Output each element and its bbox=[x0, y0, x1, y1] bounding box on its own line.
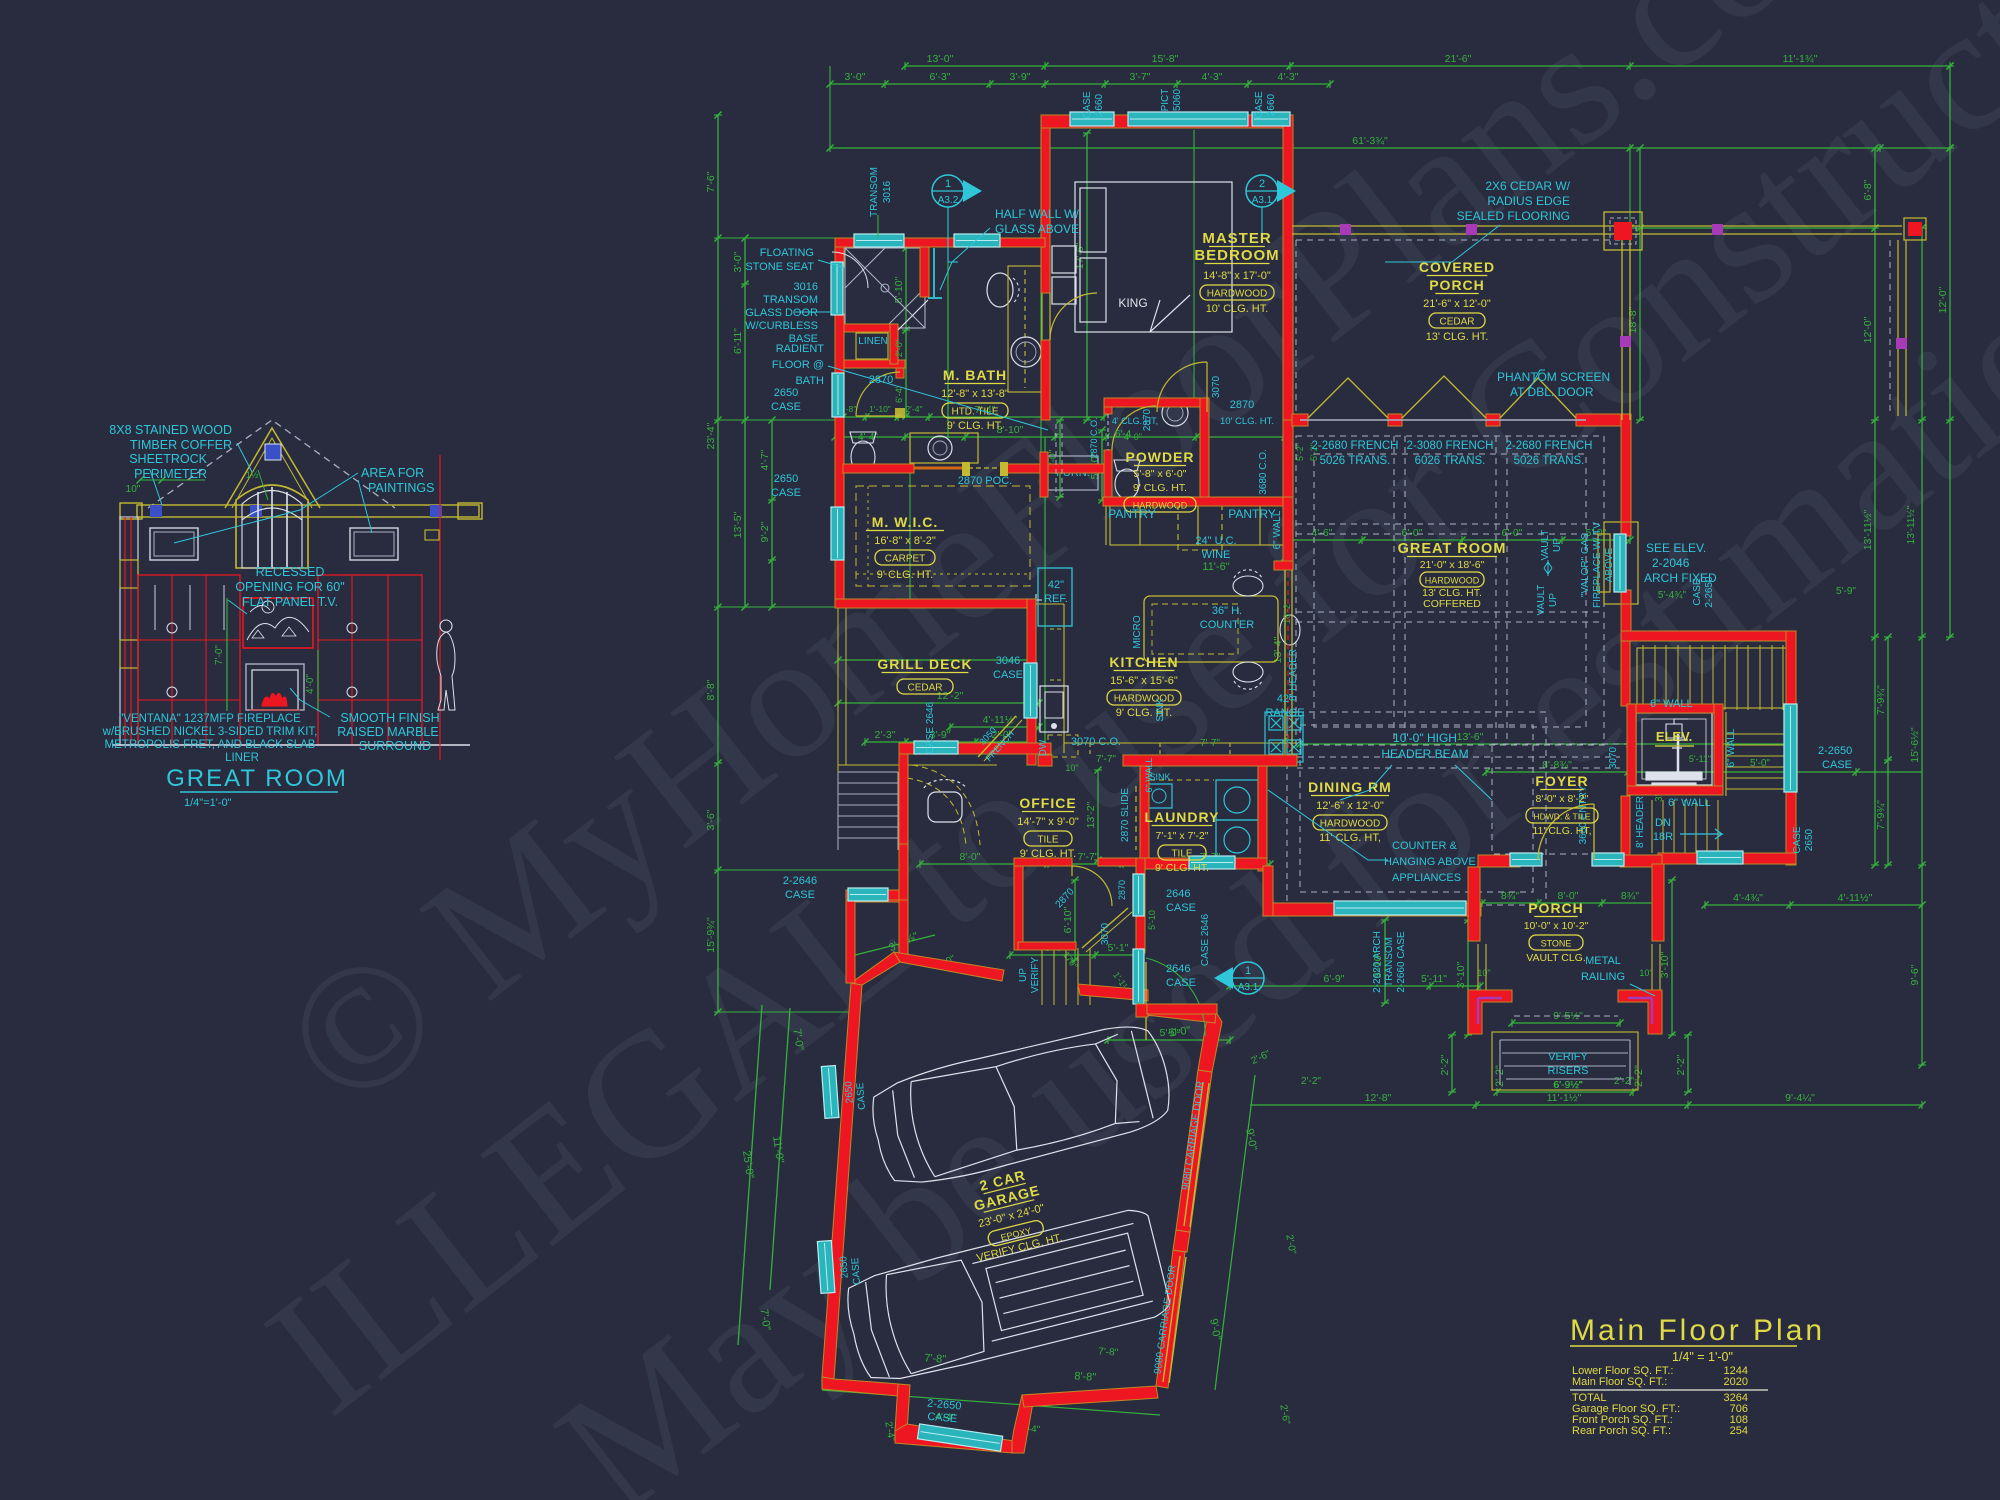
svg-text:7'-6": 7'-6" bbox=[705, 171, 717, 192]
svg-text:1'-10": 1'-10" bbox=[869, 404, 891, 414]
svg-text:2-2660 CASE: 2-2660 CASE bbox=[1396, 931, 1407, 992]
svg-text:3016: 3016 bbox=[882, 180, 893, 203]
svg-text:9' CLG. HT.: 9' CLG. HT. bbox=[1155, 862, 1209, 874]
svg-text:13'-2": 13'-2" bbox=[1085, 801, 1097, 828]
svg-text:UP: UP bbox=[1548, 593, 1559, 607]
svg-text:15'-9¾": 15'-9¾" bbox=[705, 917, 717, 953]
svg-text:12'-8": 12'-8" bbox=[1365, 1092, 1392, 1104]
svg-text:5'-11": 5'-11" bbox=[1689, 754, 1711, 764]
svg-text:BEDROOM: BEDROOM bbox=[1194, 247, 1279, 264]
svg-text:STONE: STONE bbox=[1541, 939, 1572, 949]
svg-text:10' CLG. HT.: 10' CLG. HT. bbox=[1206, 303, 1269, 315]
svg-text:1: 1 bbox=[1245, 965, 1251, 977]
svg-text:CASE: CASE bbox=[1254, 91, 1265, 119]
svg-text:CASE: CASE bbox=[1792, 826, 1803, 854]
svg-text:VAULT: VAULT bbox=[1536, 585, 1547, 616]
svg-text:2-2046: 2-2046 bbox=[1652, 556, 1690, 570]
svg-text:PAINTINGS: PAINTINGS bbox=[368, 481, 434, 495]
svg-text:HEADER BEAM: HEADER BEAM bbox=[1381, 747, 1468, 761]
svg-text:HDWD. & TILE: HDWD. & TILE bbox=[1534, 812, 1591, 822]
svg-text:13'-5": 13'-5" bbox=[732, 511, 744, 538]
svg-text:FLOATING: FLOATING bbox=[760, 247, 814, 259]
svg-text:21'-6" x 12'-0": 21'-6" x 12'-0" bbox=[1423, 298, 1491, 310]
svg-text:10": 10" bbox=[1639, 968, 1652, 978]
svg-text:LINEN: LINEN bbox=[858, 336, 887, 347]
svg-text:KING: KING bbox=[1118, 296, 1147, 310]
svg-text:2650: 2650 bbox=[1804, 828, 1815, 851]
svg-text:12'-0": 12'-0" bbox=[1937, 286, 1949, 313]
svg-text:2870 C.O.: 2870 C.O. bbox=[1089, 417, 1099, 458]
svg-text:16'-2: 16'-2 bbox=[1282, 604, 1292, 624]
svg-text:CASE: CASE bbox=[1082, 91, 1093, 119]
svg-text:OPENING FOR 60": OPENING FOR 60" bbox=[235, 580, 344, 594]
svg-text:3'-10": 3'-10" bbox=[1659, 951, 1671, 978]
svg-text:11'-1½": 11'-1½" bbox=[1547, 1092, 1582, 1104]
svg-text:13' CLG. HT.: 13' CLG. HT. bbox=[1426, 331, 1489, 343]
svg-text:METAL: METAL bbox=[1585, 955, 1621, 967]
svg-text:16'-8" x 8'-2": 16'-8" x 8'-2" bbox=[874, 535, 936, 547]
svg-text:9' CLG. HT.: 9' CLG. HT. bbox=[1133, 482, 1187, 494]
svg-text:2646: 2646 bbox=[1166, 888, 1190, 900]
svg-text:2-2680 FRENCH: 2-2680 FRENCH bbox=[1312, 440, 1399, 452]
svg-text:CASE: CASE bbox=[1822, 759, 1852, 771]
svg-text:11'-6": 11'-6" bbox=[1202, 561, 1229, 573]
svg-text:OFFICE: OFFICE bbox=[1019, 795, 1076, 811]
svg-text:11' CLG. HT,: 11' CLG. HT, bbox=[1533, 825, 1592, 837]
svg-text:CEDAR: CEDAR bbox=[907, 683, 942, 694]
svg-text:2870: 2870 bbox=[1117, 880, 1127, 900]
svg-text:CARPET: CARPET bbox=[885, 554, 926, 565]
svg-text:w/BRUSHED NICKEL 3-SIDED TRIM: w/BRUSHED NICKEL 3-SIDED TRIM KIT, bbox=[102, 726, 318, 738]
svg-text:BATH: BATH bbox=[795, 375, 824, 387]
svg-text:A3.2: A3.2 bbox=[938, 195, 959, 206]
svg-text:6" WALL: 6" WALL bbox=[1650, 698, 1693, 710]
svg-text:14'-8" x 17'-0": 14'-8" x 17'-0" bbox=[1203, 270, 1271, 282]
svg-text:9'-2": 9'-2" bbox=[759, 521, 771, 542]
svg-text:4'-11½": 4'-11½" bbox=[1838, 892, 1873, 904]
svg-text:4'-6": 4'-6" bbox=[1312, 527, 1333, 539]
svg-text:POWDER: POWDER bbox=[1126, 449, 1195, 465]
svg-text:VAULT CLG.: VAULT CLG. bbox=[1526, 952, 1586, 964]
svg-text:2870 POC.: 2870 POC. bbox=[958, 475, 1012, 487]
svg-text:CASE 2646: CASE 2646 bbox=[1200, 913, 1211, 966]
svg-text:SEALED FLOORING: SEALED FLOORING bbox=[1457, 209, 1570, 223]
svg-text:3'-0": 3'-0" bbox=[732, 251, 744, 272]
svg-text:6026 TRANS.: 6026 TRANS. bbox=[1415, 455, 1486, 467]
svg-text:TILE: TILE bbox=[1171, 849, 1192, 860]
svg-text:HARDWOOD: HARDWOOD bbox=[1320, 819, 1381, 830]
svg-text:GLASS DOOR: GLASS DOOR bbox=[745, 307, 818, 319]
svg-text:RISERS: RISERS bbox=[1548, 1065, 1589, 1077]
svg-text:CASE: CASE bbox=[855, 1082, 868, 1110]
svg-text:15'-6½": 15'-6½" bbox=[1909, 727, 1921, 763]
svg-text:2'-4": 2'-4" bbox=[906, 404, 923, 414]
svg-text:PHANTOM SCREEN: PHANTOM SCREEN bbox=[1497, 370, 1610, 384]
svg-text:LAUNDRY: LAUNDRY bbox=[1145, 809, 1220, 825]
svg-text:21'-0" x 18'-6": 21'-0" x 18'-6" bbox=[1420, 559, 1485, 571]
svg-text:CASE: CASE bbox=[1692, 578, 1703, 606]
svg-text:2870: 2870 bbox=[869, 374, 893, 386]
svg-text:5'-4¾": 5'-4¾" bbox=[1658, 590, 1687, 601]
svg-text:3'-9": 3'-9" bbox=[1010, 71, 1031, 83]
svg-text:11' CLG. HT,: 11' CLG. HT, bbox=[1319, 832, 1381, 844]
svg-text:13'-11½": 13'-11½" bbox=[1906, 505, 1917, 544]
svg-text:2'-2": 2'-2" bbox=[1675, 1054, 1687, 1075]
svg-text:VAULT: VAULT bbox=[1540, 530, 1551, 561]
svg-text:8X8 STAINED WOOD: 8X8 STAINED WOOD bbox=[109, 423, 232, 437]
svg-text:GREAT ROOM: GREAT ROOM bbox=[1398, 541, 1507, 557]
svg-text:5026 TRANS.: 5026 TRANS. bbox=[1320, 455, 1391, 467]
svg-text:10' CLG. HT.: 10' CLG. HT. bbox=[1220, 416, 1274, 427]
svg-text:RECESSED: RECESSED bbox=[256, 565, 325, 579]
svg-text:FLAT PANEL T.V.: FLAT PANEL T.V. bbox=[242, 595, 338, 609]
svg-text:SURROUND: SURROUND bbox=[359, 739, 431, 753]
svg-text:PANTRY: PANTRY bbox=[1228, 507, 1276, 521]
svg-text:GLASS ABOVE: GLASS ABOVE bbox=[995, 222, 1079, 236]
svg-text:6'-4": 6'-4" bbox=[894, 385, 904, 403]
svg-text:2020: 2020 bbox=[1724, 1376, 1748, 1388]
svg-text:2-2646: 2-2646 bbox=[783, 875, 817, 887]
svg-text:4'-3": 4'-3" bbox=[1278, 71, 1299, 83]
svg-text:10": 10" bbox=[1065, 763, 1078, 773]
svg-text:1: 1 bbox=[945, 178, 951, 190]
svg-text:3070 C.O.: 3070 C.O. bbox=[1071, 736, 1121, 748]
svg-text:3'-7": 3'-7" bbox=[1130, 71, 1151, 83]
svg-text:3'-0": 3'-0" bbox=[845, 71, 866, 83]
svg-text:3070: 3070 bbox=[1211, 375, 1222, 398]
svg-text:2'-2": 2'-2" bbox=[1439, 1054, 1451, 1075]
svg-text:CEDAR: CEDAR bbox=[1439, 317, 1474, 328]
svg-text:4'-4¾": 4'-4¾" bbox=[1733, 892, 1763, 904]
svg-text:W/CURBLESS: W/CURBLESS bbox=[745, 320, 818, 332]
svg-text:5026 TRANS.: 5026 TRANS. bbox=[1514, 455, 1585, 467]
svg-text:7'-8": 7'-8" bbox=[1098, 1346, 1119, 1358]
svg-text:VERIFY: VERIFY bbox=[1030, 957, 1041, 993]
svg-text:RAISED MARBLE: RAISED MARBLE bbox=[337, 725, 438, 739]
svg-text:2'-3": 2'-3" bbox=[875, 729, 896, 741]
svg-text:3'-6": 3'-6" bbox=[705, 809, 717, 830]
svg-text:5'-0": 5'-0" bbox=[1750, 758, 1770, 769]
svg-text:-8": -8" bbox=[846, 404, 857, 414]
svg-text:7'-1" x 7'-2": 7'-1" x 7'-2" bbox=[1156, 830, 1209, 842]
svg-text:13'-6": 13'-6" bbox=[1457, 731, 1484, 743]
svg-text:13'-0": 13'-0" bbox=[927, 53, 954, 65]
svg-text:9' CLG. HT.: 9' CLG. HT. bbox=[1020, 848, 1077, 860]
svg-text:COUNTER: COUNTER bbox=[1200, 619, 1254, 631]
svg-text:18'-8": 18'-8" bbox=[1627, 306, 1639, 333]
svg-text:2'-2": 2'-2" bbox=[1614, 1076, 1634, 1087]
svg-text:6" WALL: 6" WALL bbox=[1144, 758, 1154, 793]
svg-text:2-2650: 2-2650 bbox=[1818, 745, 1852, 757]
svg-text:VERIFY: VERIFY bbox=[1548, 1051, 1588, 1063]
svg-text:Main Floor SQ. FT.:: Main Floor SQ. FT.: bbox=[1572, 1376, 1667, 1388]
svg-text:CASE: CASE bbox=[1166, 977, 1196, 989]
svg-text:2870 SLIDE: 2870 SLIDE bbox=[1120, 788, 1131, 842]
svg-text:DINING RM: DINING RM bbox=[1308, 779, 1392, 795]
svg-text:HALF WALL W/: HALF WALL W/ bbox=[995, 207, 1079, 221]
svg-text:4'-0": 4'-0" bbox=[305, 674, 316, 694]
svg-text:21'-6": 21'-6" bbox=[1445, 53, 1472, 65]
svg-text:12'-8" x 13'-8": 12'-8" x 13'-8" bbox=[941, 388, 1009, 400]
svg-text:2'-0": 2'-0" bbox=[894, 339, 904, 357]
svg-text:2650: 2650 bbox=[774, 473, 798, 485]
svg-text:2-2620 ARCH: 2-2620 ARCH bbox=[1372, 931, 1383, 993]
svg-text:36" H.: 36" H. bbox=[1212, 605, 1242, 617]
svg-text:SINK: SINK bbox=[1155, 698, 1166, 722]
svg-text:12'-6" x 12'-0": 12'-6" x 12'-0" bbox=[1316, 800, 1384, 812]
svg-text:61'-3¾": 61'-3¾" bbox=[1352, 135, 1388, 147]
svg-text:5'-10: 5'-10 bbox=[1147, 910, 1157, 930]
svg-text:CASE: CASE bbox=[785, 889, 815, 901]
svg-text:PORCH: PORCH bbox=[1429, 277, 1485, 293]
svg-text:11'-1¾": 11'-1¾" bbox=[1783, 53, 1818, 65]
svg-text:M. BATH: M. BATH bbox=[943, 367, 1007, 383]
svg-text:HANGING ABOVE: HANGING ABOVE bbox=[1384, 856, 1476, 868]
svg-text:TIMBER COFFER: TIMBER COFFER bbox=[130, 438, 232, 452]
svg-text:CASE: CASE bbox=[850, 1257, 863, 1285]
svg-text:9' CLG. HT.: 9' CLG. HT. bbox=[877, 569, 934, 581]
svg-text:10": 10" bbox=[126, 484, 141, 495]
svg-text:LINER: LINER bbox=[225, 752, 259, 764]
svg-text:2870: 2870 bbox=[1230, 399, 1254, 411]
svg-text:3070: 3070 bbox=[1100, 922, 1111, 945]
svg-text:7'-0": 7'-0" bbox=[214, 645, 225, 665]
svg-text:AREA FOR: AREA FOR bbox=[361, 466, 424, 480]
svg-text:PANTRY: PANTRY bbox=[1108, 507, 1156, 521]
svg-text:COVERED: COVERED bbox=[1419, 259, 1495, 275]
svg-text:CASE 2646: CASE 2646 bbox=[925, 701, 936, 754]
svg-text:2650: 2650 bbox=[774, 387, 798, 399]
svg-text:10'-0" x 10'-2": 10'-0" x 10'-2" bbox=[1524, 920, 1589, 932]
svg-text:8' HEADER: 8' HEADER bbox=[1635, 796, 1646, 848]
svg-text:8'-0" x 8'-2": 8'-0" x 8'-2" bbox=[1536, 793, 1589, 805]
svg-text:6'-8": 6'-8" bbox=[1862, 179, 1874, 200]
svg-text:HTD. TILE: HTD. TILE bbox=[951, 407, 998, 418]
svg-text:ELEV.: ELEV. bbox=[1656, 729, 1692, 744]
svg-text:9'-6": 9'-6" bbox=[1909, 964, 1921, 985]
svg-text:13'-11½": 13'-11½" bbox=[1862, 509, 1874, 550]
svg-text:MASTER: MASTER bbox=[1202, 230, 1271, 247]
svg-text:3'-10": 3'-10" bbox=[1455, 961, 1467, 988]
svg-text:6'-10": 6'-10" bbox=[1062, 906, 1074, 933]
svg-text:UP: UP bbox=[1552, 538, 1563, 552]
svg-text:CASE: CASE bbox=[993, 669, 1023, 681]
svg-text:2-3080 FRENCH: 2-3080 FRENCH bbox=[1407, 440, 1494, 452]
svg-text:6'-3": 6'-3" bbox=[930, 71, 951, 83]
svg-text:AT DBL. DOOR: AT DBL. DOOR bbox=[1510, 385, 1594, 399]
svg-text:1/4" = 1'-0": 1/4" = 1'-0" bbox=[1672, 1350, 1733, 1364]
svg-text:42": 42" bbox=[1277, 693, 1293, 705]
svg-text:HARDWOOD: HARDWOOD bbox=[1425, 576, 1480, 586]
svg-text:CASE: CASE bbox=[1166, 902, 1196, 914]
svg-text:SEE ELEV.: SEE ELEV. bbox=[1646, 541, 1706, 555]
svg-text:4'-0": 4'-0" bbox=[1124, 432, 1142, 442]
svg-text:15'-6" x 15'-6": 15'-6" x 15'-6" bbox=[1110, 675, 1178, 687]
svg-text:M. W.I.C.: M. W.I.C. bbox=[872, 514, 939, 530]
svg-text:"VENTANA" 1237MFP FIREPLACE: "VENTANA" 1237MFP FIREPLACE bbox=[119, 713, 301, 725]
svg-text:5'-8" x 6'-0": 5'-8" x 6'-0" bbox=[1134, 468, 1187, 480]
svg-text:6" WALL: 6" WALL bbox=[1726, 728, 1737, 767]
svg-text:8'-8": 8'-8" bbox=[705, 679, 717, 700]
svg-text:FIREPLACE W/ TV: FIREPLACE W/ TV bbox=[1592, 522, 1603, 608]
svg-text:HARDWOOD: HARDWOOD bbox=[1207, 289, 1268, 300]
svg-text:5'-10": 5'-10" bbox=[893, 276, 905, 303]
svg-text:1/4"=1'-0": 1/4"=1'-0" bbox=[184, 797, 232, 809]
svg-text:2646: 2646 bbox=[1166, 963, 1190, 975]
svg-text:Rear Porch SQ. FT.:: Rear Porch SQ. FT.: bbox=[1572, 1425, 1671, 1437]
svg-text:"VALOR" GAS: "VALOR" GAS bbox=[1580, 533, 1591, 597]
svg-text:4' CLG. HT,: 4' CLG. HT, bbox=[1112, 416, 1158, 426]
svg-text:DN: DN bbox=[1655, 817, 1671, 829]
svg-text:TILE: TILE bbox=[1037, 835, 1058, 846]
svg-text:FOYER: FOYER bbox=[1535, 773, 1588, 789]
svg-text:SHEETROCK: SHEETROCK bbox=[129, 452, 207, 466]
svg-text:2650: 2650 bbox=[843, 1080, 856, 1103]
svg-text:KITCHEN: KITCHEN bbox=[1109, 654, 1178, 670]
svg-text:7'-7": 7'-7" bbox=[1200, 738, 1220, 749]
svg-text:COFFERED: COFFERED bbox=[1423, 598, 1481, 610]
svg-text:18R: 18R bbox=[1653, 831, 1673, 843]
svg-text:GRILL DECK: GRILL DECK bbox=[877, 656, 972, 672]
svg-text:2-2680 FRENCH: 2-2680 FRENCH bbox=[1506, 440, 1593, 452]
svg-text:9' CLG. HT.: 9' CLG. HT. bbox=[947, 420, 1004, 432]
svg-text:2-2650: 2-2650 bbox=[1704, 576, 1715, 608]
svg-text:9'-4¼": 9'-4¼" bbox=[1785, 1092, 1815, 1104]
svg-text:14'-7" x 9'-0": 14'-7" x 9'-0" bbox=[1017, 816, 1079, 828]
svg-text:23'-4": 23'-4" bbox=[705, 422, 717, 449]
svg-text:8'-8¾": 8'-8¾" bbox=[1542, 759, 1572, 771]
svg-text:7'-9¾": 7'-9¾" bbox=[1875, 800, 1887, 830]
svg-text:REF.: REF. bbox=[1044, 593, 1068, 605]
svg-text:8'-0": 8'-0" bbox=[960, 851, 981, 863]
svg-text:6'-11": 6'-11" bbox=[732, 328, 744, 354]
svg-text:5'-11": 5'-11" bbox=[1421, 973, 1447, 985]
svg-text:2660: 2660 bbox=[1094, 93, 1105, 116]
svg-text:PICT: PICT bbox=[1160, 89, 1171, 112]
svg-text:DW: DW bbox=[1038, 739, 1049, 756]
svg-text:A3.1: A3.1 bbox=[1252, 195, 1273, 206]
svg-text:CASE: CASE bbox=[771, 487, 801, 499]
svg-text:3680 C.O.: 3680 C.O. bbox=[1258, 449, 1269, 495]
svg-text:6'-9½": 6'-9½" bbox=[1554, 1080, 1583, 1091]
svg-text:TRANSOM: TRANSOM bbox=[869, 167, 880, 217]
svg-text:8'-8": 8'-8" bbox=[1074, 1370, 1097, 1384]
svg-text:APPLIANCES: APPLIANCES bbox=[1392, 872, 1461, 884]
svg-text:7'-9¾": 7'-9¾" bbox=[1875, 685, 1887, 715]
svg-text:10": 10" bbox=[1477, 968, 1490, 978]
svg-text:7'-7": 7'-7" bbox=[1078, 851, 1099, 863]
svg-text:2650: 2650 bbox=[838, 1255, 851, 1278]
svg-text:GREAT ROOM: GREAT ROOM bbox=[166, 765, 348, 792]
svg-text:6'-9": 6'-9" bbox=[1324, 973, 1345, 985]
svg-text:METROPOLIS FRET, AND BLACK SLA: METROPOLIS FRET, AND BLACK SLAB bbox=[105, 739, 316, 751]
svg-text:2X6 CEDAR W/: 2X6 CEDAR W/ bbox=[1485, 179, 1570, 193]
svg-text:2: 2 bbox=[1259, 178, 1265, 190]
svg-text:4'-3": 4'-3" bbox=[1202, 71, 1223, 83]
svg-text:TRANSOM: TRANSOM bbox=[763, 294, 818, 306]
svg-text:FLOOR @: FLOOR @ bbox=[772, 359, 824, 371]
svg-text:5'-9": 5'-9" bbox=[1836, 586, 1856, 597]
svg-text:3070: 3070 bbox=[1608, 746, 1619, 769]
svg-text:ABOVE: ABOVE bbox=[1604, 547, 1615, 582]
svg-text:3046: 3046 bbox=[996, 655, 1020, 667]
svg-text:TRANSOM: TRANSOM bbox=[1384, 937, 1395, 987]
svg-text:RAILING: RAILING bbox=[1581, 971, 1625, 983]
svg-text:2'-2": 2'-2" bbox=[1301, 1076, 1321, 1087]
svg-text:8¾": 8¾" bbox=[1621, 890, 1640, 902]
svg-text:PORCH: PORCH bbox=[1528, 900, 1584, 916]
svg-text:PERIMETER: PERIMETER bbox=[134, 467, 207, 481]
svg-text:12'-0": 12'-0" bbox=[1862, 316, 1874, 343]
svg-text:Main Floor Plan: Main Floor Plan bbox=[1570, 1314, 1825, 1347]
svg-text:CASE: CASE bbox=[771, 401, 801, 413]
svg-text:6'-0": 6'-0" bbox=[1502, 527, 1523, 539]
svg-text:COUNTER &: COUNTER & bbox=[1392, 840, 1457, 852]
svg-text:RADIENT: RADIENT bbox=[776, 343, 825, 355]
svg-text:10'-0" HIGH: 10'-0" HIGH bbox=[1393, 731, 1457, 745]
svg-text:3016: 3016 bbox=[794, 281, 818, 293]
svg-text:5060: 5060 bbox=[1172, 88, 1183, 111]
svg-text:2660: 2660 bbox=[1266, 93, 1277, 116]
svg-text:A3.1: A3.1 bbox=[1238, 982, 1259, 993]
svg-text:RADIUS EDGE: RADIUS EDGE bbox=[1487, 194, 1570, 208]
svg-text:UP: UP bbox=[1018, 968, 1029, 982]
svg-text:6" WALL: 6" WALL bbox=[1668, 797, 1711, 809]
svg-text:2'-2": 2'-2" bbox=[1633, 1065, 1645, 1087]
svg-text:254: 254 bbox=[1730, 1425, 1748, 1437]
svg-text:7'-7": 7'-7" bbox=[1096, 754, 1116, 765]
svg-text:STONE SEAT: STONE SEAT bbox=[745, 261, 814, 273]
svg-text:24" U.C.: 24" U.C. bbox=[1195, 535, 1236, 547]
svg-text:5'-2": 5'-2" bbox=[1295, 443, 1305, 461]
svg-text:RANGE: RANGE bbox=[1265, 707, 1304, 719]
svg-text:MICRO: MICRO bbox=[1132, 615, 1143, 649]
svg-text:42": 42" bbox=[1048, 579, 1064, 591]
svg-text:WINE: WINE bbox=[1202, 549, 1231, 561]
svg-text:4'-7": 4'-7" bbox=[759, 449, 771, 470]
svg-text:15'-8": 15'-8" bbox=[1152, 53, 1179, 65]
svg-text:SMOOTH FINISH: SMOOTH FINISH bbox=[340, 711, 439, 725]
